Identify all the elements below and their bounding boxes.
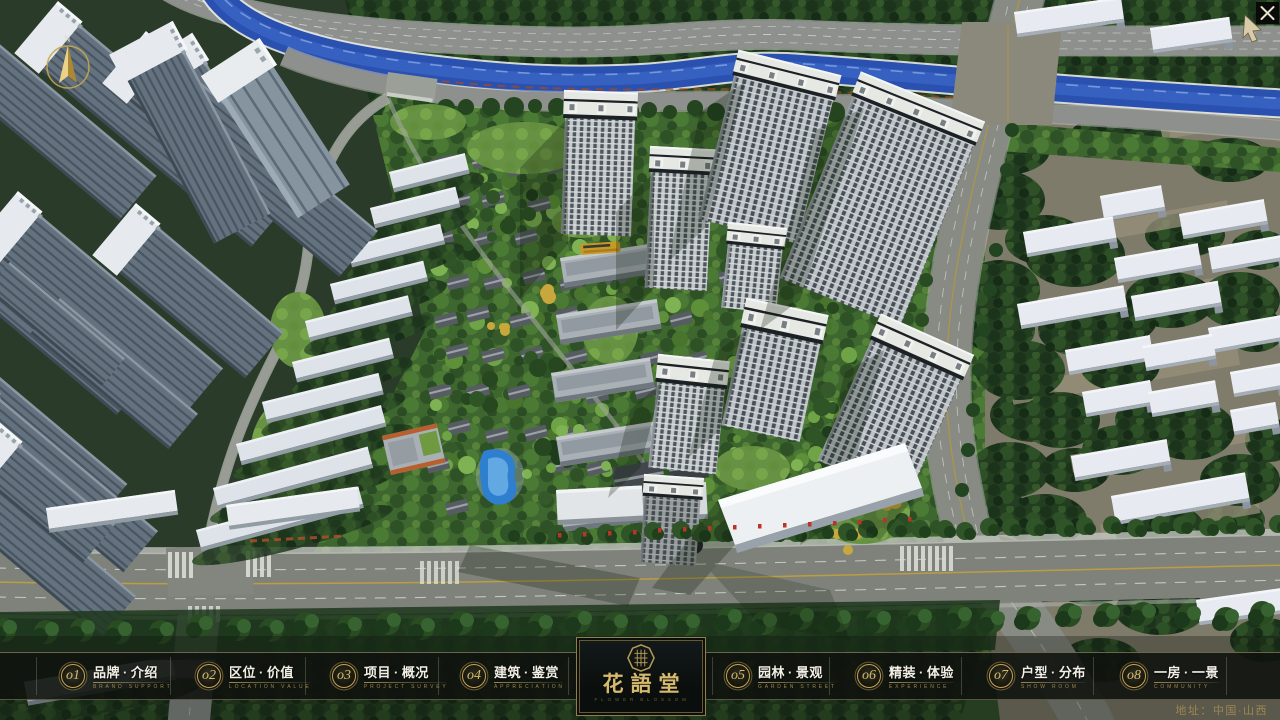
svg-text:N: N — [64, 34, 71, 44]
